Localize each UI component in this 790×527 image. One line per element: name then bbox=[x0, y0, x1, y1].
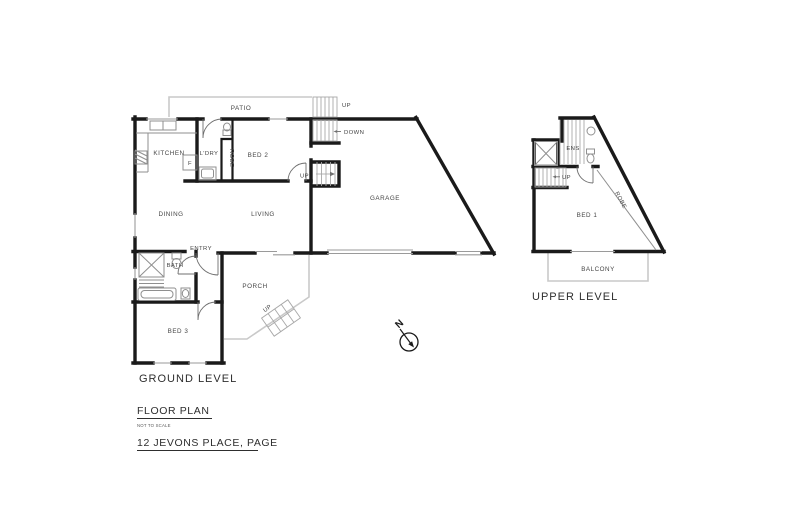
garage-door-opening bbox=[327, 250, 413, 254]
entry-label: ENTRY bbox=[190, 246, 212, 252]
ensuite-fixtures bbox=[587, 127, 596, 163]
dining-label: DINING bbox=[158, 211, 183, 218]
upper-up-arrow-head bbox=[553, 175, 557, 178]
bed3-label: BED 3 bbox=[168, 328, 189, 335]
patio-up-stairs bbox=[313, 97, 337, 117]
laundry-label: L'DRY bbox=[200, 151, 219, 157]
patio-label: PATIO bbox=[231, 105, 251, 112]
patio-up-label: UP bbox=[342, 103, 351, 109]
living-sliding-door bbox=[255, 252, 295, 255]
floor-plan-page: PATIO KITCHEN L'DRY BED 2 ROBE GARAGE DI… bbox=[0, 0, 790, 527]
kitchen-label: KITCHEN bbox=[153, 150, 184, 157]
upper-up-label: UP bbox=[562, 175, 571, 181]
upper-linen-cupboard bbox=[535, 142, 558, 166]
living-label: LIVING bbox=[251, 211, 275, 218]
plan-title: FLOOR PLAN bbox=[137, 405, 210, 417]
ensuite-label: ENS bbox=[566, 146, 579, 152]
balcony-label: BALCONY bbox=[581, 266, 615, 273]
ground-window-sills bbox=[135, 119, 482, 363]
north-compass: N bbox=[393, 318, 418, 351]
ensuite-door-swing bbox=[577, 167, 593, 184]
upper-exterior-walls bbox=[533, 117, 664, 252]
floor-plan-drawing: PATIO KITCHEN L'DRY BED 2 ROBE GARAGE DI… bbox=[0, 0, 790, 527]
ground-exterior-walls bbox=[133, 117, 494, 363]
upper-level-title: UPPER LEVEL bbox=[532, 291, 618, 303]
living-up-label: UP bbox=[300, 174, 309, 180]
garage-down-stairs bbox=[313, 120, 337, 141]
footer: FLOOR PLAN NOT TO SCALE 12 JEVONS PLACE,… bbox=[137, 405, 278, 451]
porch-label: PORCH bbox=[242, 283, 267, 290]
down-arrow-head bbox=[334, 130, 338, 133]
address-title: 12 JEVONS PLACE, PAGE bbox=[137, 437, 278, 449]
upper-level-plan: ENS UP BED 1 ROBE BALCONY UPPER LEVEL bbox=[532, 117, 664, 303]
robe-label: ROBE bbox=[228, 149, 234, 167]
ground-level-plan: PATIO KITCHEN L'DRY BED 2 ROBE GARAGE DI… bbox=[133, 97, 494, 385]
garage-label: GARAGE bbox=[370, 195, 400, 202]
porch-outline bbox=[224, 255, 309, 339]
porch-up-label: UP bbox=[262, 304, 273, 314]
ground-level-title: GROUND LEVEL bbox=[139, 373, 237, 385]
bed2-label: BED 2 bbox=[248, 152, 269, 159]
north-label: N bbox=[393, 318, 406, 331]
upper-robe-label: ROBE bbox=[613, 191, 627, 210]
bath-label: BATH bbox=[167, 263, 184, 269]
bed1-label: BED 1 bbox=[577, 212, 598, 219]
bath-fixtures bbox=[138, 253, 190, 301]
garage-down-label: DOWN bbox=[344, 130, 364, 136]
living-up-stairs bbox=[316, 162, 335, 186]
scale-note: NOT TO SCALE bbox=[137, 423, 171, 428]
fridge-label: F bbox=[188, 161, 192, 167]
